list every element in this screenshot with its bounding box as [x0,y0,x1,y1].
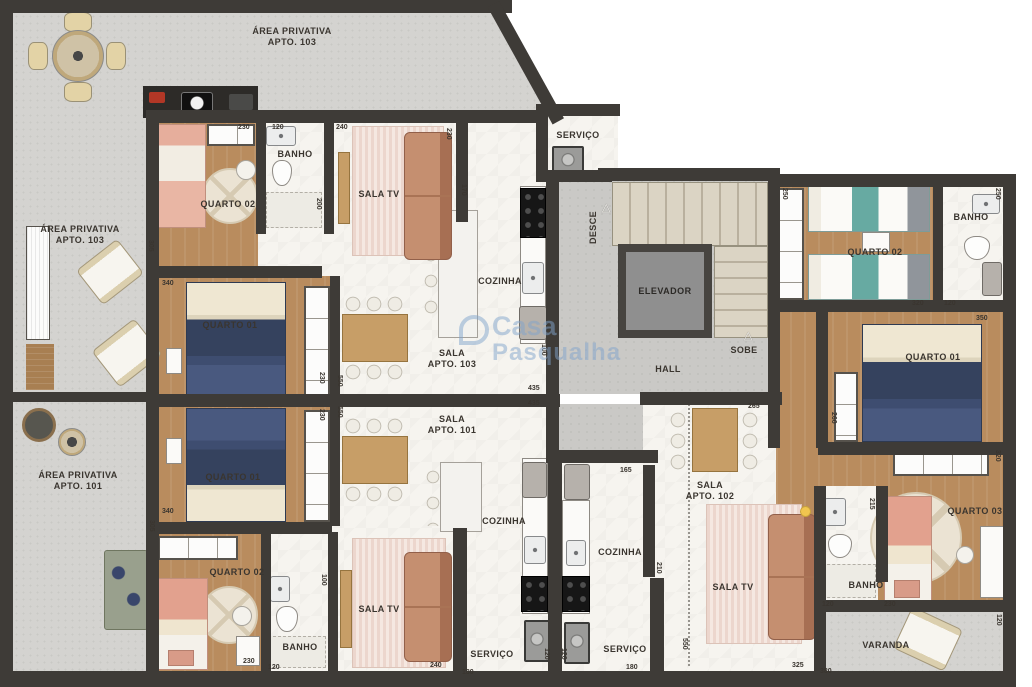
single-bed [156,124,206,228]
wall [256,116,266,234]
dimension: 230 [445,128,452,140]
wardrobe [304,410,330,522]
wall [150,522,332,534]
dimension: 170 [460,184,467,196]
dimension: 305 [148,520,155,532]
label-varanda: VARANDA [838,640,934,651]
dimension: 120 [944,300,956,307]
dimension: 230 [318,372,325,384]
wall [818,442,1006,455]
desce-label: DESCE [588,192,600,244]
label-quarto01-103: QUARTO 01 [175,320,285,331]
dining-table [342,314,408,362]
dining-chairs [345,296,407,312]
wall [146,110,548,123]
label-quarto02-103: QUARTO 02 [173,199,283,210]
wall [548,463,562,674]
dimension: 240 [336,124,348,131]
dimension: 435 [528,385,540,392]
dimension: 550 [681,638,688,650]
watermark-logo-icon [459,315,489,345]
patio-chair [106,42,126,70]
stove [520,188,546,238]
barbecue-box [229,94,253,110]
grill [149,92,165,103]
stove [521,576,548,612]
watermark: Casa Pasqualha [492,312,712,366]
dining-chairs [670,412,686,472]
tv-rack [338,152,350,224]
watermark-line2: Pasqualha [492,340,712,365]
washer [982,262,1002,296]
dimension: 265 [748,403,760,410]
label-sala-101: SALA APTO. 101 [400,414,504,437]
wall [0,0,13,684]
wardrobe [834,372,858,442]
wall [770,174,1016,187]
label-area-privativa-103-left: ÁREA PRIVATIVA APTO. 103 [20,224,140,247]
nightstand [166,348,182,374]
dimension: 165 [620,467,632,474]
dimension: 340 [162,508,174,515]
dimension: 120 [560,648,567,660]
label-quarto02-101: QUARTO 02 [182,567,292,578]
fridge [522,462,547,498]
dimension: 240 [430,662,442,669]
label-sala-tv-101: SALA TV [334,604,424,615]
dimension: 120 [995,614,1002,626]
dimension: 230 [243,658,255,665]
projection-line [688,400,690,666]
kitchen-sink [524,536,546,564]
dimension: 380 [820,668,832,675]
bar-stools [426,470,440,526]
dimension: 180 [462,669,474,676]
bathroom-sink [270,576,290,602]
wall [650,578,664,674]
label-banho-102-bottom: BANHO [833,580,899,591]
dimension: 100 [320,574,327,586]
closet [893,452,989,476]
wall [150,266,322,278]
patio-chair [28,42,48,70]
pouf [236,160,256,180]
patio-chair [64,82,92,102]
label-quarto01-101: QUARTO 01 [178,472,288,483]
dimension: 250 [781,188,788,200]
kitchen-sink [566,540,586,566]
label-cozinha-101: COZINHA [462,516,546,527]
label-area-privativa-103-top: ÁREA PRIVATIVA APTO. 103 [212,26,372,49]
label-servico-top: SERVIÇO [540,130,616,141]
pouf [232,606,252,626]
outdoor-sofa [104,550,148,630]
wall [536,104,620,116]
label-banho-103: BANHO [262,149,328,160]
wall [814,600,1006,612]
nightstand [166,438,182,464]
dimension: 350 [976,315,988,322]
bathroom-sink [824,498,846,526]
label-sala-tv-103: SALA TV [334,189,424,200]
wall [546,450,658,463]
dimension: 340 [162,280,174,287]
stairs-right [714,246,768,338]
single-bed [808,186,930,232]
label-servico-102: SERVIÇO [585,644,665,655]
patio-table [52,30,104,82]
floor-lamp [800,506,811,517]
dining-table [692,408,738,472]
patio-side-table [58,428,86,456]
label-quarto02-102: QUARTO 02 [820,247,930,258]
hall-label: HALL [640,364,696,375]
watermark-line1: Casa [492,312,712,340]
dining-table [342,436,408,484]
dimension: 180 [626,664,638,671]
dimension: 120 [822,601,834,608]
hanging-chair [22,408,56,442]
patio-chair [64,12,92,32]
wall [643,465,655,577]
wardrobe [778,188,804,300]
dimension: 325 [792,662,804,669]
label-cozinha-103: COZINHA [455,276,545,287]
dimension: 230 [318,409,325,421]
wardrobe [304,286,330,398]
dimension: 210 [655,562,662,574]
dimension: 120 [268,664,280,671]
sobe-label: SOBE [718,345,770,356]
sofa [768,514,816,640]
desk-chair [956,546,974,564]
stove [562,576,590,612]
wall [598,168,780,181]
dimension: 550 [336,406,343,418]
wall [330,404,340,526]
single-bed [808,254,930,300]
wall [876,486,888,582]
label-servico-101: SERVIÇO [452,649,532,660]
stairs-upper [612,182,768,246]
double-bed [186,408,286,522]
dining-chairs [345,364,407,380]
laundry-sink [564,622,590,664]
label-banho-102-top: BANHO [938,212,1004,223]
wall [933,180,943,306]
label-sala-102: SALA APTO. 102 [660,480,760,503]
label-quarto01-102: QUARTO 01 [878,352,988,363]
dimension: 230 [884,601,896,608]
dimension: 435 [528,400,540,407]
dimension: 120 [543,648,550,660]
dimension: 215 [868,498,875,510]
label-banho-101: BANHO [267,642,333,653]
label-sala-tv-102: SALA TV [688,582,778,593]
headboard [168,650,194,666]
label-sala-103: SALA APTO. 103 [400,348,504,371]
wall [0,0,512,13]
desce-arrow-icon: △ [602,203,610,214]
wall [768,180,780,448]
floor-hall-strip [559,404,643,454]
dimension: 230 [238,124,250,131]
wall [146,110,159,674]
floor-plan: ELEVADOR DESCE △ △ SOBE HALL [0,0,1032,687]
wall [816,308,828,448]
desk [980,526,1004,598]
elevator-label: ELEVADOR [638,286,691,296]
wall [324,116,334,234]
dimension: 550 [336,375,343,387]
dining-chairs [742,412,758,472]
double-bed [186,282,286,398]
wall [0,392,146,402]
dimension: 250 [994,188,1001,200]
sobe-arrow-icon: △ [744,331,752,342]
label-area-privativa-101: ÁREA PRIVATIVA APTO. 101 [18,470,138,493]
wall [146,394,560,407]
dining-chairs [345,418,407,434]
wall [814,486,826,608]
dimension: 305 [147,240,154,252]
dimension: 320 [912,300,924,307]
dimension: 320 [994,450,1001,462]
fridge [564,464,590,500]
dining-chairs [345,486,407,502]
wood-deck [26,344,54,390]
label-quarto03-102: QUARTO 03 [920,506,1030,517]
wall [456,110,468,222]
dimension: 260 [830,412,837,424]
wall [640,392,782,405]
label-cozinha-102: COZINHA [585,547,655,558]
wardrobe [158,536,238,560]
dimension: 200 [315,198,322,210]
wall [776,300,1006,312]
dimension: 120 [272,124,284,131]
double-bed [862,324,982,442]
